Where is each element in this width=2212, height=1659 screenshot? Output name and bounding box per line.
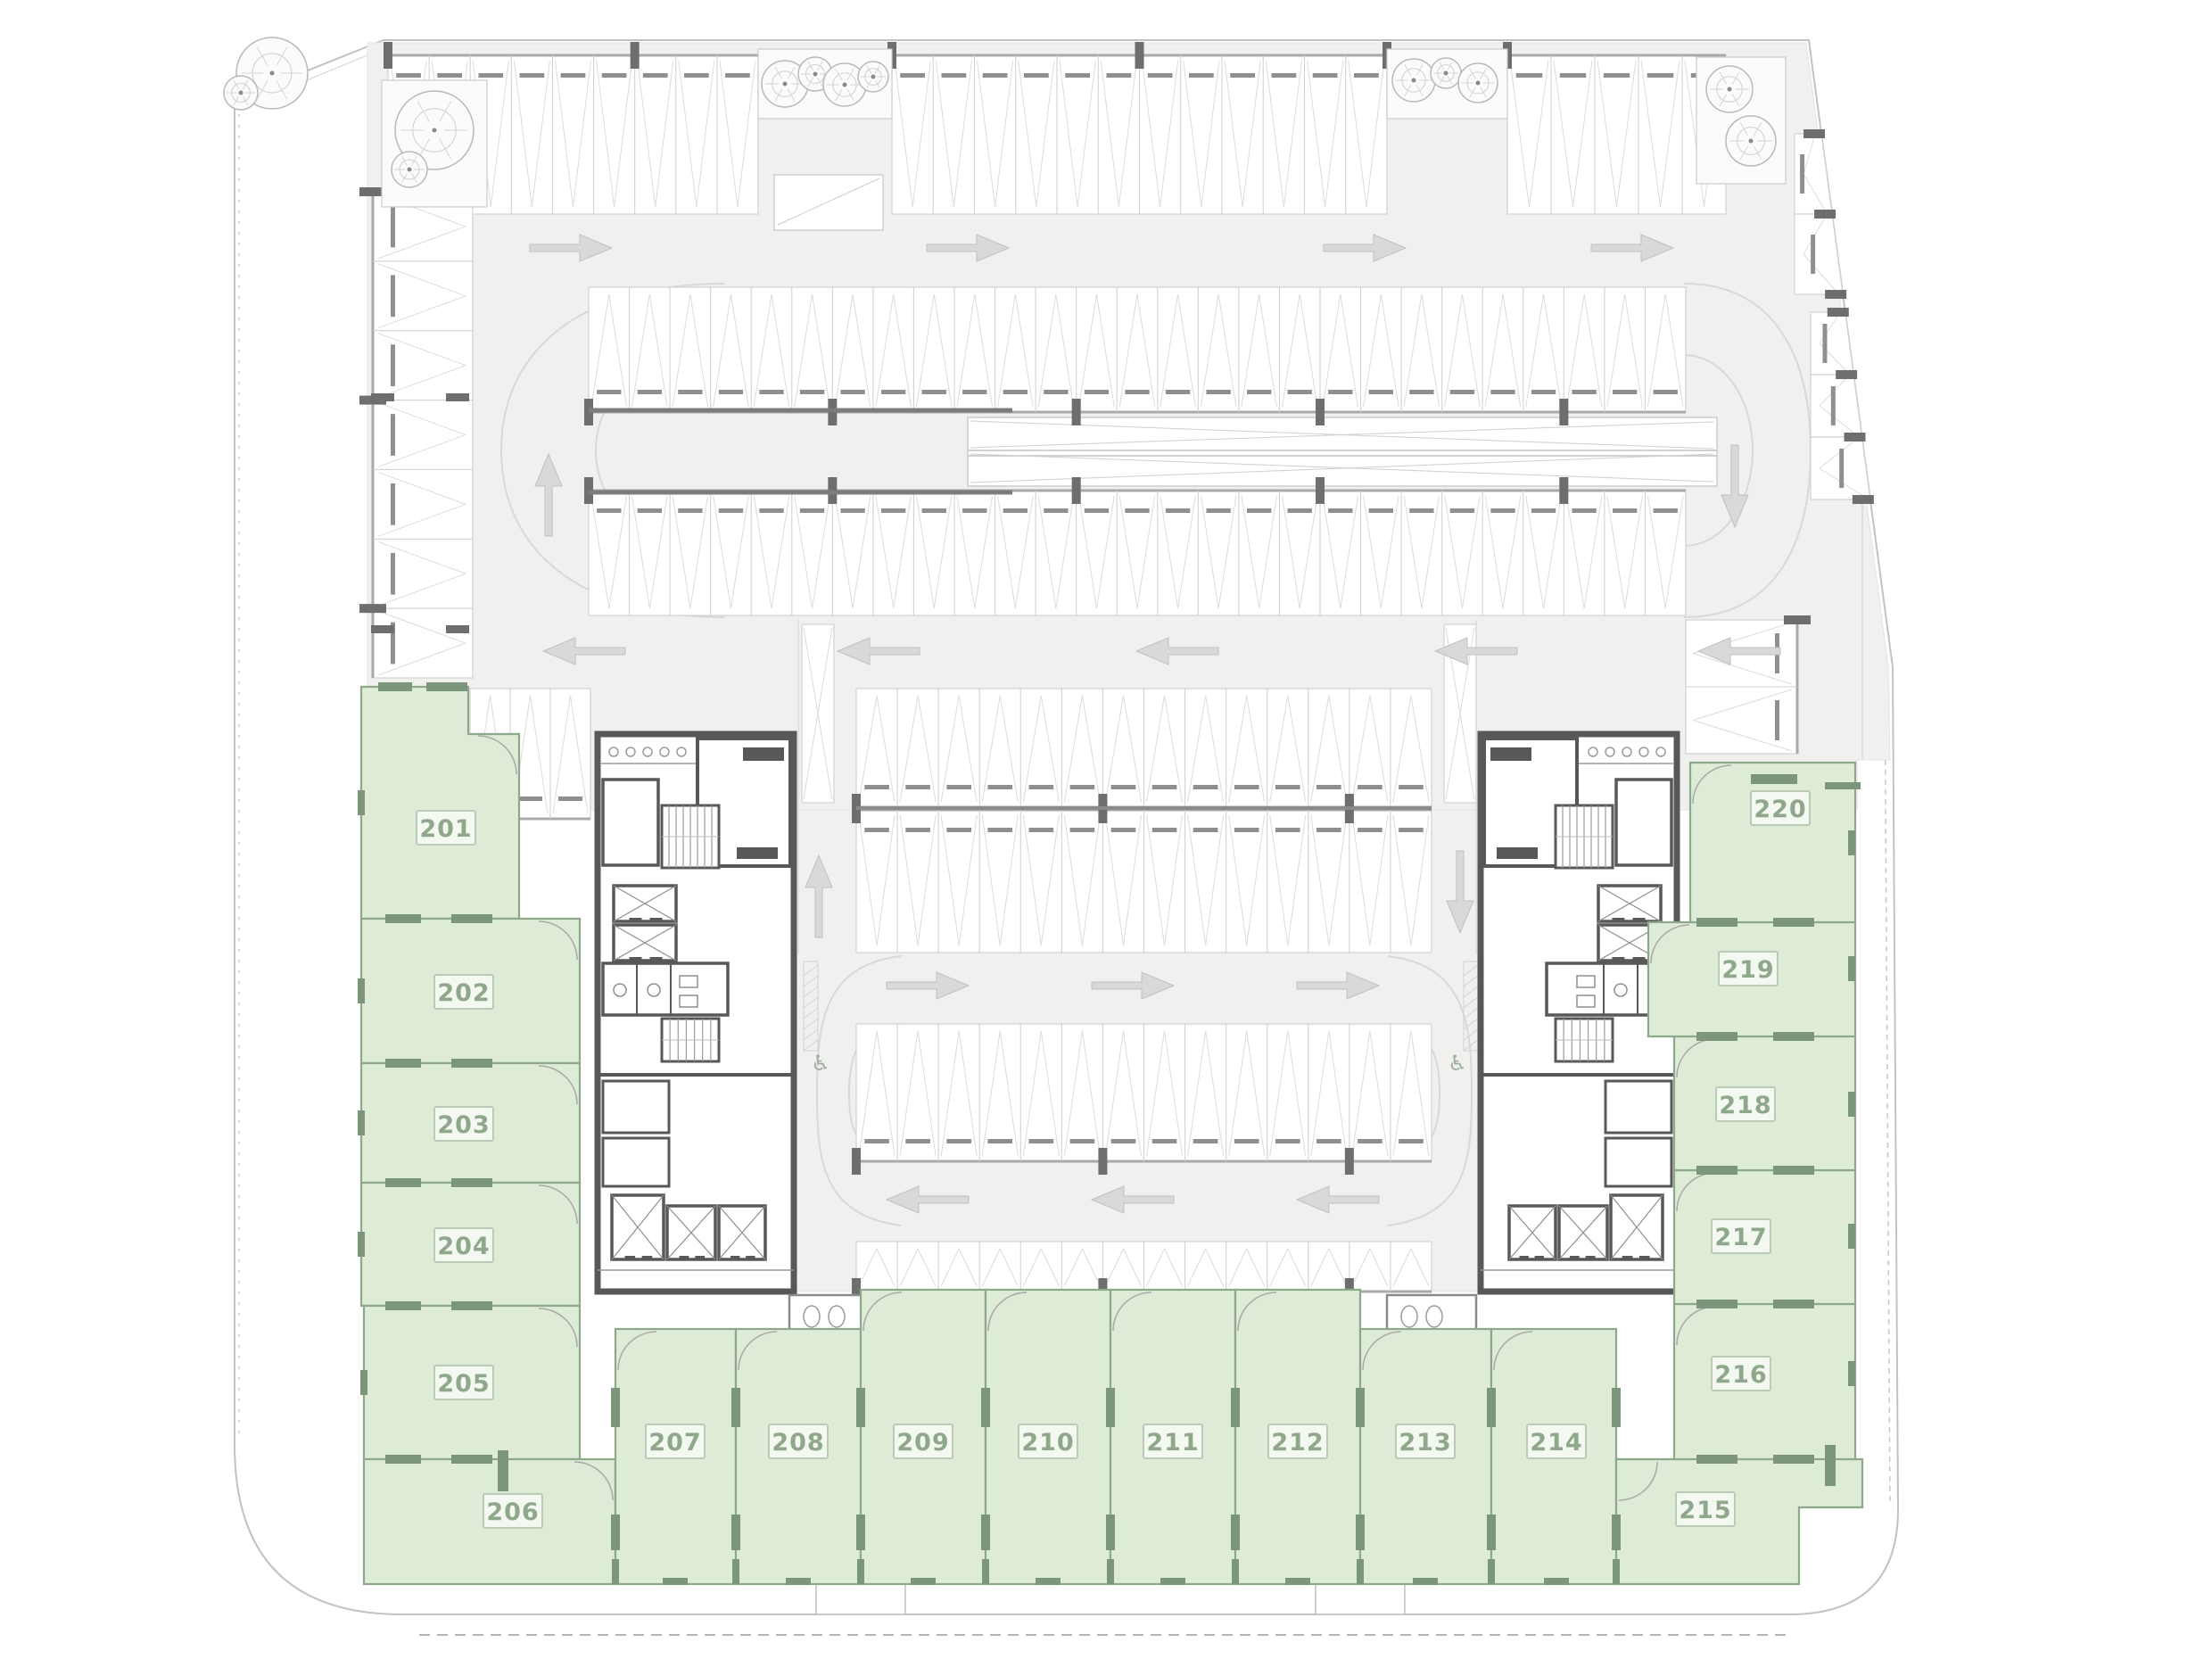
unit-206-badge[interactable]: 206 (483, 1494, 542, 1528)
door-jamb-mark (385, 914, 421, 923)
unit-204-badge[interactable]: 204 (434, 1228, 493, 1262)
tree-icon (1392, 59, 1435, 102)
door-jamb-mark (731, 1388, 740, 1427)
door-jamb-mark (385, 1301, 421, 1310)
door-jamb-mark (1231, 1515, 1240, 1550)
door-jamb-mark (981, 1388, 990, 1427)
door-jamb-mark (1232, 1559, 1239, 1584)
unit-210-label: 210 (1021, 1429, 1074, 1457)
unit-216-label: 216 (1714, 1361, 1767, 1389)
door-jamb-mark (1773, 1300, 1814, 1308)
door-jamb-mark (857, 1559, 864, 1584)
door-jamb-mark (731, 1515, 740, 1550)
door-jamb-mark (451, 914, 492, 923)
unit-219-label: 219 (1721, 956, 1774, 984)
core-west (598, 734, 794, 1292)
door-jamb-mark (385, 1455, 421, 1464)
door-jamb-mark (1357, 1559, 1364, 1584)
unit-208-label: 208 (772, 1429, 824, 1457)
wheelchair-icon: ♿ (1448, 1051, 1467, 1076)
tree-icon (1706, 66, 1753, 112)
unit-211-badge[interactable]: 211 (1143, 1424, 1202, 1458)
entry-box (774, 175, 883, 230)
unit-216-badge[interactable]: 216 (1712, 1357, 1770, 1391)
row-c-mid (852, 689, 1432, 821)
door-jamb-mark (1773, 1166, 1814, 1175)
unit-210-badge[interactable]: 210 (1019, 1424, 1077, 1458)
door-jamb-mark (1544, 1578, 1569, 1585)
unit-211-label: 211 (1146, 1429, 1199, 1457)
door-jamb-mark (856, 1388, 865, 1427)
unit-201-label: 201 (419, 815, 472, 843)
door-jamb-mark (1413, 1578, 1438, 1585)
row-right-edge-2 (1811, 308, 1874, 504)
door-jamb-mark (385, 1178, 421, 1187)
door-jamb-mark (856, 1515, 865, 1550)
unit-218-label: 218 (1719, 1092, 1771, 1119)
door-jamb-mark (1773, 1455, 1814, 1464)
door-jamb-mark (1488, 1559, 1495, 1584)
unit-208-badge[interactable]: 208 (769, 1424, 828, 1458)
door-jamb-mark (451, 1059, 492, 1068)
door-jamb-mark (1848, 1092, 1855, 1117)
unit-207-label: 207 (648, 1429, 701, 1457)
door-jamb-mark (1356, 1515, 1365, 1550)
unit-206-label: 206 (486, 1498, 539, 1526)
door-jamb-mark (1036, 1578, 1061, 1585)
door-jamb-mark (1696, 1455, 1737, 1464)
door-jamb-mark (385, 1059, 421, 1068)
row-right-edge-1 (1795, 129, 1846, 299)
door-jamb-mark (911, 1578, 936, 1585)
door-jamb-mark (1231, 1388, 1240, 1427)
wall-dash (371, 625, 394, 633)
door-jamb-mark (1696, 918, 1737, 927)
unit-202-label: 202 (437, 979, 490, 1007)
door-jamb-mark (1751, 774, 1797, 784)
row-e (852, 1024, 1432, 1175)
unit-213-label: 213 (1399, 1429, 1451, 1457)
door-jamb-mark (1285, 1578, 1310, 1585)
unit-213-badge[interactable]: 213 (1396, 1424, 1455, 1458)
unit-203-badge[interactable]: 203 (434, 1107, 493, 1141)
door-jamb-mark (1848, 956, 1855, 981)
door-jamb-mark (981, 1515, 990, 1550)
unit-209-badge[interactable]: 209 (894, 1424, 953, 1458)
door-jamb-mark (1696, 1032, 1737, 1041)
unit-209-label: 209 (896, 1429, 949, 1457)
wheelchair-icon: ♿ (811, 1051, 830, 1076)
door-jamb-mark (1773, 918, 1814, 927)
unit-215-label: 215 (1679, 1497, 1731, 1524)
tree-icon (858, 62, 888, 92)
door-jamb-mark (982, 1559, 989, 1584)
door-jamb-mark (612, 1559, 619, 1584)
speed-ramp (968, 417, 1717, 486)
floorplan-page: ♿♿20120220320420520620720820921021121221… (0, 0, 2212, 1659)
door-jamb-mark (732, 1559, 739, 1584)
door-jamb-mark (786, 1578, 811, 1585)
unit-219-badge[interactable]: 219 (1719, 952, 1778, 986)
unit-220-label: 220 (1754, 796, 1806, 823)
row-right-pocket (1686, 615, 1811, 754)
row-left-edge (359, 187, 473, 678)
door-jamb-mark (1107, 1559, 1114, 1584)
row-d (852, 796, 1432, 953)
unit-214-badge[interactable]: 214 (1527, 1424, 1586, 1458)
wall-dash (446, 625, 469, 633)
door-jamb-mark (358, 1232, 365, 1257)
wall-dash (371, 393, 394, 401)
door-jamb-mark (1825, 1445, 1836, 1486)
unit-203-label: 203 (437, 1111, 490, 1139)
door-jamb-mark (1106, 1388, 1115, 1427)
door-jamb-mark (1160, 1578, 1185, 1585)
tree-icon (1458, 63, 1498, 103)
door-jamb-mark (451, 1301, 492, 1310)
door-jamb-mark (451, 1178, 492, 1187)
door-jamb-mark (426, 682, 467, 691)
row-b (584, 477, 1686, 615)
unit-212-badge[interactable]: 212 (1268, 1424, 1327, 1458)
unit-217-label: 217 (1714, 1224, 1767, 1251)
door-jamb-mark (1106, 1515, 1115, 1550)
door-jamb-mark (1613, 1559, 1620, 1584)
unit-207-badge[interactable]: 207 (646, 1424, 705, 1458)
door-jamb-mark (1848, 1224, 1855, 1249)
unit-205-label: 205 (437, 1370, 490, 1398)
door-jamb-mark (1487, 1388, 1496, 1427)
floor-plan-canvas: ♿♿20120220320420520620720820921021121221… (0, 0, 2212, 1659)
door-jamb-mark (1696, 1300, 1737, 1308)
door-jamb-mark (1612, 1388, 1621, 1427)
row-top-3 (1503, 42, 1726, 214)
unit-214-label: 214 (1530, 1429, 1582, 1457)
door-jamb-mark (1696, 1166, 1737, 1175)
door-jamb-mark (358, 790, 365, 815)
door-jamb-mark (1356, 1388, 1365, 1427)
door-jamb-mark (663, 1578, 688, 1585)
row-top-2 (887, 42, 1391, 214)
unit-217-badge[interactable]: 217 (1712, 1219, 1770, 1253)
tree-icon (1726, 116, 1776, 166)
door-jamb-mark (1773, 1032, 1814, 1041)
door-jamb-mark (498, 1450, 508, 1491)
unit-212-label: 212 (1271, 1429, 1324, 1457)
unit-201-badge[interactable]: 201 (417, 811, 475, 845)
wall-dash (446, 393, 469, 401)
door-jamb-mark (358, 1110, 365, 1135)
door-jamb-mark (611, 1515, 620, 1550)
unit-220-badge[interactable]: 220 (1751, 791, 1810, 825)
door-jamb-mark (1848, 830, 1855, 855)
row-a (584, 287, 1686, 425)
door-jamb-mark (1825, 782, 1861, 789)
unit-202-badge[interactable]: 202 (434, 975, 493, 1009)
tree-icon (1431, 58, 1461, 88)
tree-icon (224, 76, 258, 110)
door-jamb-mark (360, 1370, 367, 1395)
ramp-deck (968, 417, 1717, 486)
tree-icon (392, 152, 427, 187)
door-jamb-mark (611, 1388, 620, 1427)
door-jamb-mark (378, 682, 412, 691)
door-jamb-mark (358, 978, 365, 1003)
unit-205-badge[interactable]: 205 (434, 1366, 493, 1399)
unit-204-label: 204 (437, 1233, 490, 1260)
door-jamb-mark (451, 1455, 492, 1464)
tall-stall (802, 624, 834, 803)
unit-215-badge[interactable]: 215 (1676, 1492, 1735, 1526)
door-jamb-mark (1612, 1515, 1621, 1550)
door-jamb-mark (1848, 1361, 1855, 1386)
door-jamb-mark (1487, 1515, 1496, 1550)
unit-218-badge[interactable]: 218 (1716, 1087, 1775, 1121)
